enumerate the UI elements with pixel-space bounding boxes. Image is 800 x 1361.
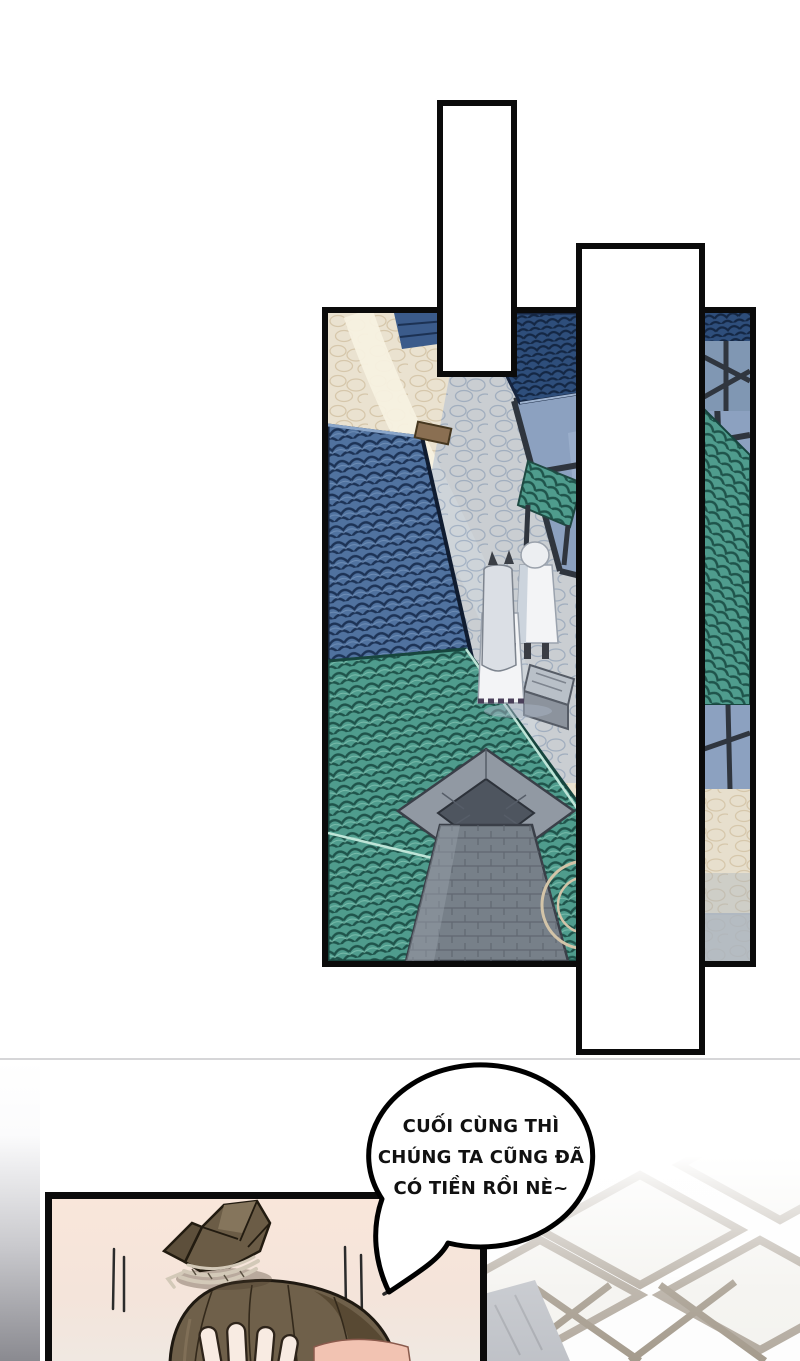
right-strip-scenery — [704, 313, 750, 961]
speech-line-1: CUỐI CÙNG THÌ — [372, 1111, 590, 1142]
gray-gradient-strip — [0, 1060, 40, 1361]
speech-line-3: CÓ TIỀN RỒI NÈ~ — [372, 1173, 590, 1204]
comic-page: CUỐI CÙNG THÌ CHÚNG TA CŨNG ĐÃ CÓ TIỀN R… — [0, 0, 800, 1361]
blank-vertical-balloon-2 — [576, 243, 705, 1055]
speech-line-2: CHÚNG TA CŨNG ĐÃ — [372, 1142, 590, 1173]
speech-bubble-text: CUỐI CÙNG THÌ CHÚNG TA CŨNG ĐÃ CÓ TIỀN R… — [372, 1111, 590, 1204]
blank-vertical-balloon-1 — [437, 100, 517, 377]
